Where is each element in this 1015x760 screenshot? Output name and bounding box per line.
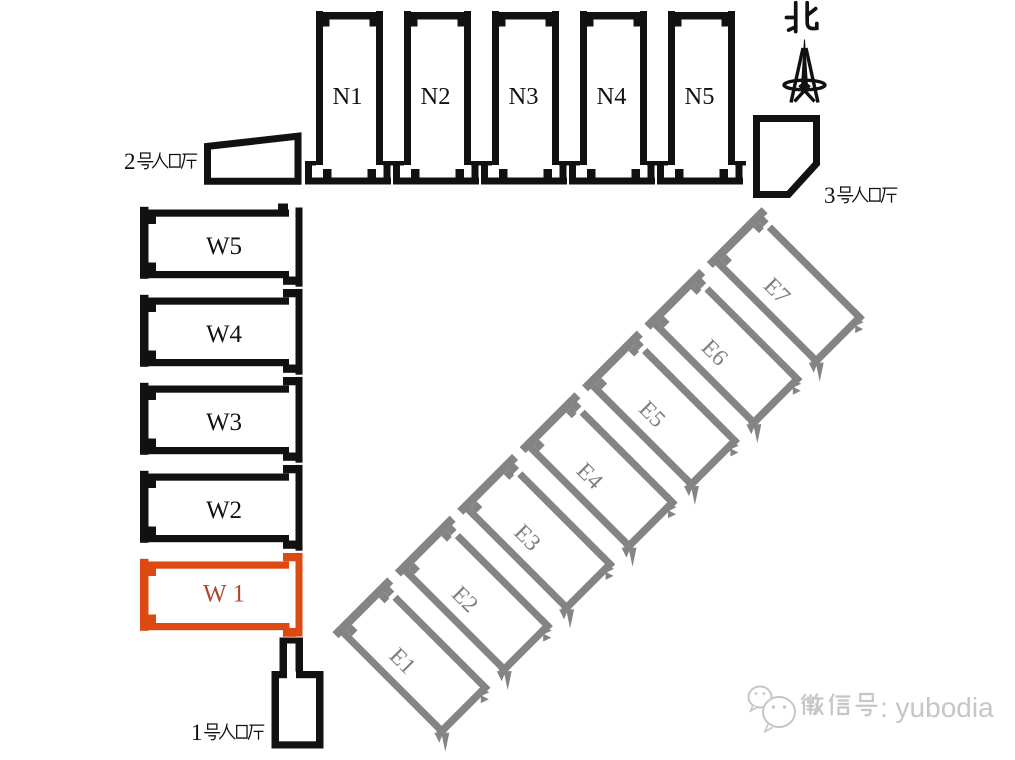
svg-text:W2: W2 bbox=[206, 497, 242, 524]
svg-text:: yubodia: : yubodia bbox=[880, 692, 994, 723]
svg-text:N3: N3 bbox=[509, 83, 539, 110]
svg-text:2: 2 bbox=[124, 149, 136, 174]
svg-text:W5: W5 bbox=[206, 233, 242, 260]
svg-text:W4: W4 bbox=[206, 321, 243, 348]
svg-text:N5: N5 bbox=[685, 83, 715, 110]
svg-text:1: 1 bbox=[191, 720, 203, 745]
svg-text:N4: N4 bbox=[597, 83, 627, 110]
svg-text:3: 3 bbox=[824, 183, 836, 208]
svg-text:W 1: W 1 bbox=[203, 581, 245, 608]
svg-text:N1: N1 bbox=[333, 83, 363, 110]
svg-text:N2: N2 bbox=[421, 83, 451, 110]
svg-text:W3: W3 bbox=[206, 409, 242, 436]
